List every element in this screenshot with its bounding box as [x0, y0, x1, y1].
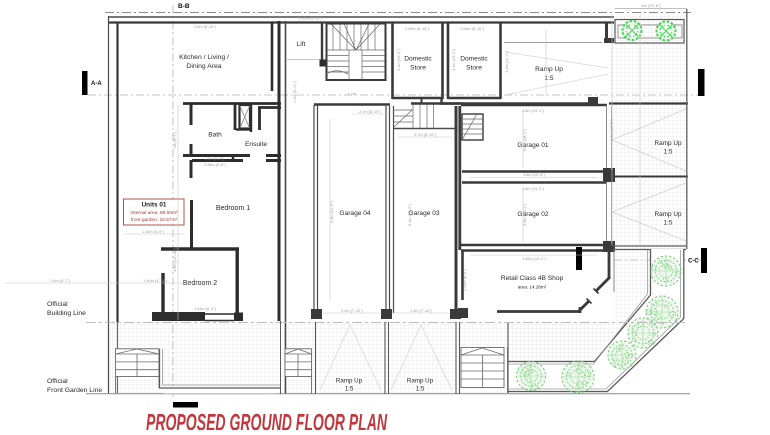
svg-text:Ramp Up: Ramp Up	[407, 378, 434, 385]
svg-text:Garage 03: Garage 03	[408, 210, 439, 217]
svg-text:1:5: 1:5	[416, 386, 425, 393]
svg-text:Domestic: Domestic	[404, 56, 432, 63]
svg-text:Dining Area: Dining Area	[186, 63, 221, 70]
svg-text:1.4m (4'-7"): 1.4m (4'-7")	[50, 279, 70, 283]
svg-text:Bedroom 2: Bedroom 2	[183, 280, 217, 287]
svg-text:1:5: 1:5	[664, 220, 673, 227]
svg-text:C-C: C-C	[688, 259, 699, 265]
svg-text:A-A: A-A	[91, 81, 102, 87]
svg-text:Kitchen / Living /: Kitchen / Living /	[179, 54, 229, 61]
svg-text:2.7m (8'-10"): 2.7m (8'-10")	[359, 110, 381, 114]
svg-text:1.06m (3'-11"): 1.06m (3'-11")	[298, 17, 322, 21]
svg-text:front garden: 22.67m²: front garden: 22.67m²	[131, 217, 178, 223]
svg-text:6.4m (21'-0"): 6.4m (21'-0")	[330, 200, 334, 222]
svg-text:2.06m (6'-10"): 2.06m (6'-10")	[405, 27, 430, 31]
svg-text:Garage 04: Garage 04	[339, 210, 370, 217]
svg-text:Front Garden Line: Front Garden Line	[47, 387, 102, 394]
svg-text:2.44m (8'-0"): 2.44m (8'-0")	[463, 268, 467, 290]
svg-text:3.9m (12'-10"): 3.9m (12'-10")	[173, 247, 177, 272]
svg-text:Store: Store	[410, 65, 426, 72]
svg-text:6.4m (21'-0"): 6.4m (21'-0")	[408, 203, 412, 225]
svg-text:Ramp Up: Ramp Up	[535, 66, 563, 73]
svg-text:5.5m (18'-1"): 5.5m (18'-1")	[523, 203, 527, 225]
svg-text:2.4m (7'-10"): 2.4m (7'-10")	[341, 309, 363, 313]
svg-text:Ramp Up: Ramp Up	[336, 378, 363, 385]
svg-text:B-B: B-B	[178, 3, 190, 10]
svg-text:Ramp Up: Ramp Up	[655, 211, 682, 218]
svg-text:1.1m: 1.1m	[348, 92, 356, 96]
svg-text:2m (6'-7"): 2m (6'-7")	[173, 131, 177, 148]
svg-text:1.94m (6'-4"): 1.94m (6'-4")	[194, 307, 216, 311]
svg-text:2.7m (8'-10"): 2.7m (8'-10")	[414, 133, 436, 137]
svg-text:5.5m (18'-1"): 5.5m (18'-1")	[523, 128, 527, 150]
svg-text:2.06m (6'-10"): 2.06m (6'-10")	[460, 27, 485, 31]
svg-text:Units 01: Units 01	[142, 202, 167, 209]
svg-text:4.8m (15'-9"): 4.8m (15'-9")	[523, 173, 545, 177]
svg-text:2.96m (9'-8"): 2.96m (9'-8")	[204, 163, 226, 167]
svg-text:Bedroom 1: Bedroom 1	[216, 205, 250, 212]
svg-text:2.4m (7'-10"): 2.4m (7'-10")	[410, 309, 432, 313]
svg-text:Bath: Bath	[208, 132, 222, 139]
svg-text:Ensuite: Ensuite	[245, 141, 267, 148]
svg-text:Lift: Lift	[297, 41, 306, 48]
svg-text:area: 14.26m²: area: 14.26m²	[518, 285, 547, 290]
svg-text:1.46m (4'-11"): 1.46m (4'-11")	[143, 279, 167, 283]
svg-text:Official: Official	[47, 301, 68, 308]
svg-text:1.7m (5'-7"): 1.7m (5'-7")	[204, 157, 224, 161]
svg-text:1:5: 1:5	[345, 386, 354, 393]
svg-text:3.1m (10'-2"): 3.1m (10'-2")	[452, 48, 456, 70]
svg-text:4.8m (19'-2"): 4.8m (19'-2")	[522, 187, 544, 191]
svg-text:9m (29'-6"): 9m (29'-6")	[641, 3, 661, 8]
svg-text:2.0m (6'-10"): 2.0m (6'-10")	[194, 25, 216, 29]
svg-text:Retail Class 4B Shop: Retail Class 4B Shop	[501, 275, 564, 282]
svg-text:1:5: 1:5	[664, 149, 673, 156]
svg-text:3.4m (11'-2"): 3.4m (11'-2")	[505, 51, 509, 73]
svg-text:1.46m (4'-9"): 1.46m (4'-9")	[142, 230, 164, 234]
svg-text:Ramp Up: Ramp Up	[655, 140, 682, 147]
svg-text:4.8m (19'-2"): 4.8m (19'-2")	[522, 109, 544, 113]
svg-text:Store: Store	[466, 65, 482, 72]
svg-text:Domestic: Domestic	[460, 56, 488, 63]
svg-text:Official: Official	[47, 378, 68, 385]
svg-text:3.1m (10'-2"): 3.1m (10'-2")	[397, 48, 401, 70]
svg-text:PROPOSED GROUND FLOOR PLAN: PROPOSED GROUND FLOOR PLAN	[146, 410, 387, 431]
svg-text:Internal area: 89.60m²: Internal area: 89.60m²	[130, 210, 178, 216]
svg-text:1.2m (3'-11"): 1.2m (3'-11")	[293, 81, 297, 103]
svg-text:3.96m (13'-0"): 3.96m (13'-0")	[522, 257, 547, 261]
svg-text:Building Line: Building Line	[47, 310, 86, 317]
